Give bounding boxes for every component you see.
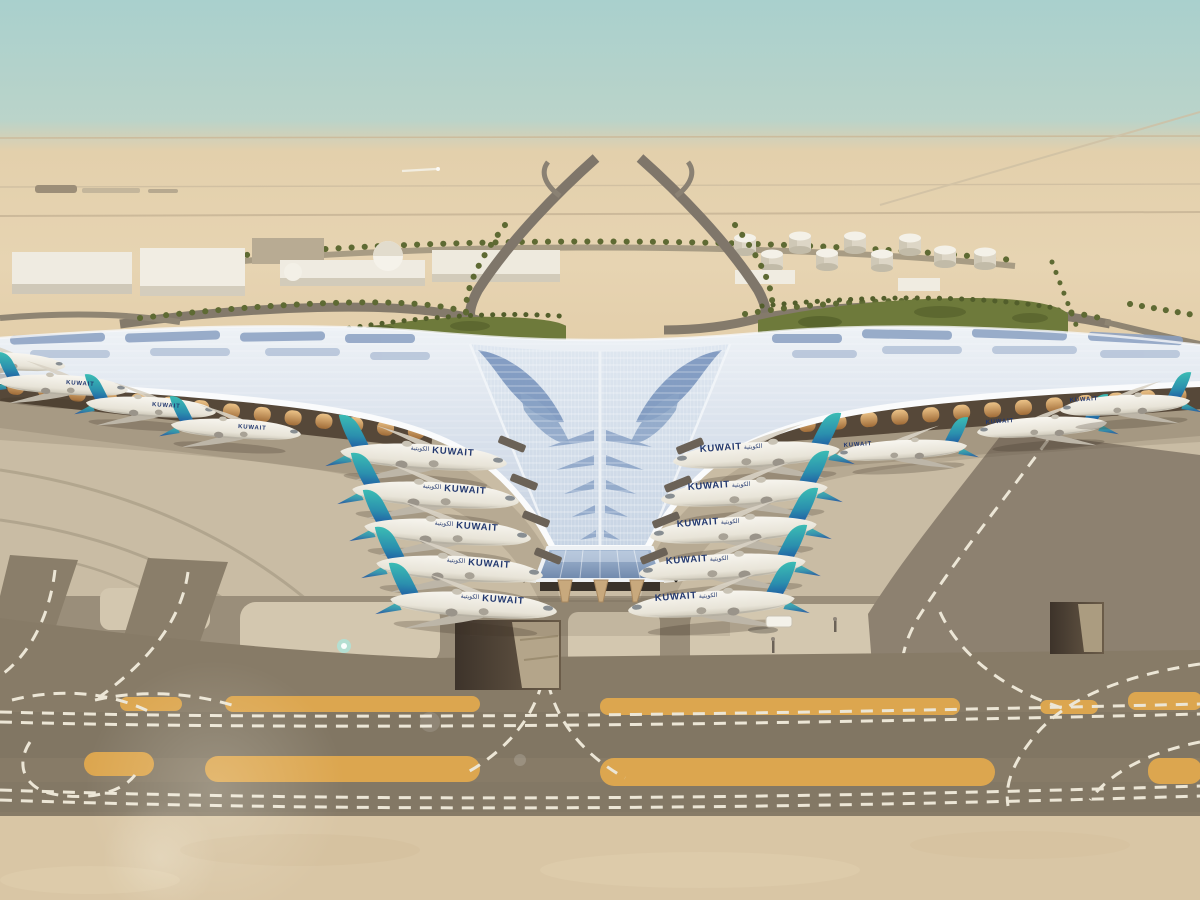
airline-title-arabic: الكويتية <box>422 483 441 491</box>
airline-title-arabic: الكويتية <box>460 593 479 601</box>
airline-title-arabic: الكويتية <box>710 555 729 563</box>
airline-title-arabic: الكويتية <box>410 445 429 453</box>
tunnel-underpass-right <box>1050 602 1104 654</box>
airport-rendering: KUWAIT الكويتية KUWAIT الكويتية KUWAIT ا… <box>0 0 1200 900</box>
airline-title-arabic: الكويتية <box>446 557 465 565</box>
airline-title-arabic: الكويتية <box>744 443 763 451</box>
airline-title-arabic: الكويتية <box>699 592 718 600</box>
airline-title-arabic: الكويتية <box>434 520 453 528</box>
airline-title-arabic: الكويتية <box>732 481 751 489</box>
airline-title-arabic: الكويتية <box>721 518 740 526</box>
